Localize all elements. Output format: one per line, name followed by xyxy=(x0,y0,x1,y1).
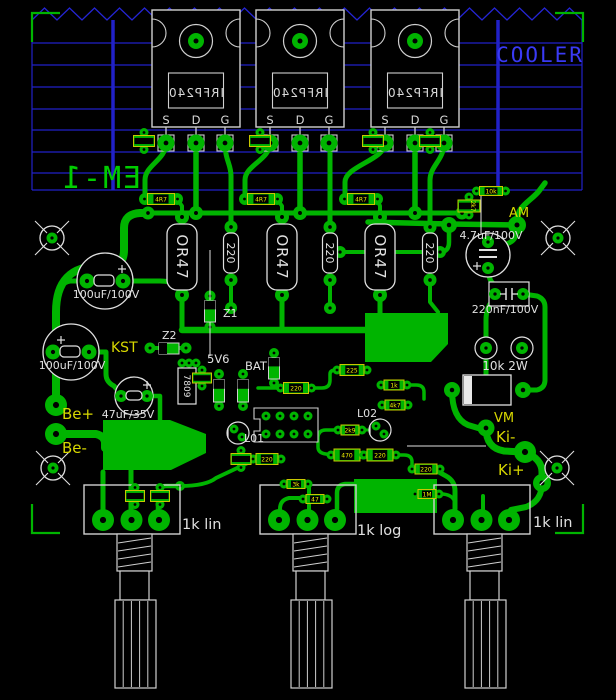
smd-resistor: 2k9 xyxy=(334,425,367,435)
smd-resistor: 220 xyxy=(408,464,445,474)
terminal-label-ki-minus: Ki- xyxy=(496,428,515,446)
smd-value-label: 4R7 xyxy=(255,196,267,203)
diode-label: Z1 xyxy=(223,307,238,320)
diode-label: Z2 xyxy=(162,329,177,342)
pot-label: 1k lin xyxy=(182,517,221,533)
smd-resistor: 4R7 xyxy=(340,194,382,205)
terminal-label-vm: VM xyxy=(494,411,514,426)
mounting-hole xyxy=(541,221,575,255)
pin-label: D xyxy=(192,113,201,127)
smd-value-label: 4R7 xyxy=(355,196,367,203)
resistor-value-label: 220 xyxy=(423,243,436,264)
smd-value-label: 1M xyxy=(423,491,432,498)
cap-label: 220nF/100V xyxy=(472,303,539,316)
resistor-OR47: OR47 xyxy=(365,224,395,290)
pin-label: D xyxy=(411,113,420,127)
smd-value-label: 1k xyxy=(390,382,398,389)
zener-label: 5V6 xyxy=(207,352,230,366)
smd-resistor xyxy=(134,128,155,154)
diode xyxy=(214,380,225,402)
pcb-board: IRFP240SDGIRFP240SDGIRFP240SDGOR47OR47OR… xyxy=(0,0,616,700)
smd-value-label: 220 xyxy=(374,452,386,459)
pot-knurled-shaft xyxy=(465,600,506,688)
copper-pour xyxy=(103,420,206,470)
cap-label: 100uF/100V xyxy=(39,359,106,372)
smd-value-label: 4R7 xyxy=(155,196,167,203)
terminal-label-be-plus: Be+ xyxy=(62,405,94,423)
smd-resistor: 4k7 xyxy=(378,400,413,410)
potentiometer xyxy=(260,485,356,688)
pot-shaft xyxy=(470,571,499,600)
pcb-layout-canvas: IRFP240SDGIRFP240SDGIRFP240SDGOR47OR47OR… xyxy=(0,0,616,700)
smd-resistor: 4R7 xyxy=(140,194,182,205)
smd-value-label: 470 xyxy=(341,452,353,459)
pin-label: S xyxy=(162,113,169,127)
led-label: L02 xyxy=(357,407,377,420)
diode xyxy=(238,380,249,402)
terminal-label-be-minus: Be- xyxy=(62,439,87,457)
regulator-part-label: 7809 xyxy=(181,375,191,398)
smd-resistor: 220 xyxy=(360,449,401,461)
corner-marker xyxy=(32,13,60,42)
pin-label: G xyxy=(325,113,334,127)
diode-BAT xyxy=(269,358,280,379)
pin-label: G xyxy=(440,113,449,127)
pot-knurled-shaft xyxy=(115,600,156,688)
mounting-hole xyxy=(35,221,69,255)
cooler-label: COOLER xyxy=(496,43,584,67)
smd-resistor: 4R7 xyxy=(240,194,282,205)
pin-label: G xyxy=(221,113,230,127)
smd-value-label: 220 xyxy=(420,466,432,473)
potentiometers xyxy=(84,485,530,688)
copper-pour xyxy=(365,313,448,362)
resistor-value-label: 220 xyxy=(323,243,336,264)
smd-value-label: 2k7 xyxy=(469,200,476,211)
smd-value-label: 220 xyxy=(261,456,273,463)
zener-diode-Z1 xyxy=(205,301,216,322)
smd-value-label: 220 xyxy=(290,385,302,392)
smd-resistor: 10k xyxy=(472,187,510,196)
smd-value-label: 10k xyxy=(485,188,497,195)
smd-value-label: 225 xyxy=(346,367,358,374)
diode-label: BAT xyxy=(245,359,268,373)
smd-resistor: 220 xyxy=(249,454,286,465)
resistor-220: 220 xyxy=(224,233,239,273)
resistor-OR47: OR47 xyxy=(267,224,297,290)
pin-label: D xyxy=(296,113,305,127)
mounting-hole xyxy=(540,451,574,485)
pot-label: 1k lin xyxy=(533,515,572,531)
resistor-value-label: OR47 xyxy=(273,234,291,279)
smd-resistor xyxy=(126,483,145,509)
led-L02 xyxy=(369,419,391,441)
resistor-value-label: OR47 xyxy=(371,234,389,279)
pot-bushing xyxy=(293,534,328,571)
smd-value-label: 47 xyxy=(311,496,319,503)
pot-knurled-shaft xyxy=(291,600,332,688)
pot-bushing xyxy=(467,534,502,571)
potentiometer xyxy=(434,485,530,688)
potentiometer xyxy=(84,485,180,688)
smd-resistor: 225 xyxy=(333,365,372,376)
copper-trace xyxy=(337,484,354,509)
transistor-part-label: IRFP240 xyxy=(387,86,443,100)
terminal-label-am: AM xyxy=(509,206,529,221)
board-name-label: EM-1 xyxy=(61,161,141,196)
smd-value-label: 4k7 xyxy=(389,402,400,409)
smd-resistor: 1k xyxy=(377,380,412,390)
pot-bushing xyxy=(117,534,152,571)
led-label: L01 xyxy=(244,432,264,445)
pin-label: S xyxy=(381,113,388,127)
smd-resistor: 1M xyxy=(411,490,444,499)
terminal-label-ki-plus: Ki+ xyxy=(498,461,525,479)
cap-label: 47uF/35V xyxy=(102,408,155,421)
terminal-label-kst: KST xyxy=(111,340,138,356)
pot-label: 1k log xyxy=(357,523,401,539)
smd-value-label: 3k xyxy=(292,481,300,488)
resistor-220: 220 xyxy=(323,233,338,273)
smd-value-label: 2k9 xyxy=(344,427,355,434)
pot-shaft xyxy=(296,571,325,600)
resistor-label: 10k 2W xyxy=(482,359,528,373)
resistor-value-label: 220 xyxy=(224,243,237,264)
pin-label: S xyxy=(266,113,273,127)
transistor-part-label: IRFP240 xyxy=(272,86,328,100)
smd-resistor: 3k xyxy=(280,480,313,489)
smd-resistor: 47 xyxy=(299,495,332,504)
smd-resistor: 220 xyxy=(276,383,316,394)
pot-shaft xyxy=(120,571,149,600)
transistor-part-label: IRFP240 xyxy=(168,86,224,100)
resistor-OR47: OR47 xyxy=(167,224,197,290)
resistor-value-label: OR47 xyxy=(173,234,191,279)
cap-label: 4.7uF/100V xyxy=(459,229,522,242)
resistor-220: 220 xyxy=(423,233,438,273)
cap-label: 100uF/100V xyxy=(73,288,140,301)
zener-diode-Z2 xyxy=(159,343,179,354)
corner-marker xyxy=(32,504,60,533)
